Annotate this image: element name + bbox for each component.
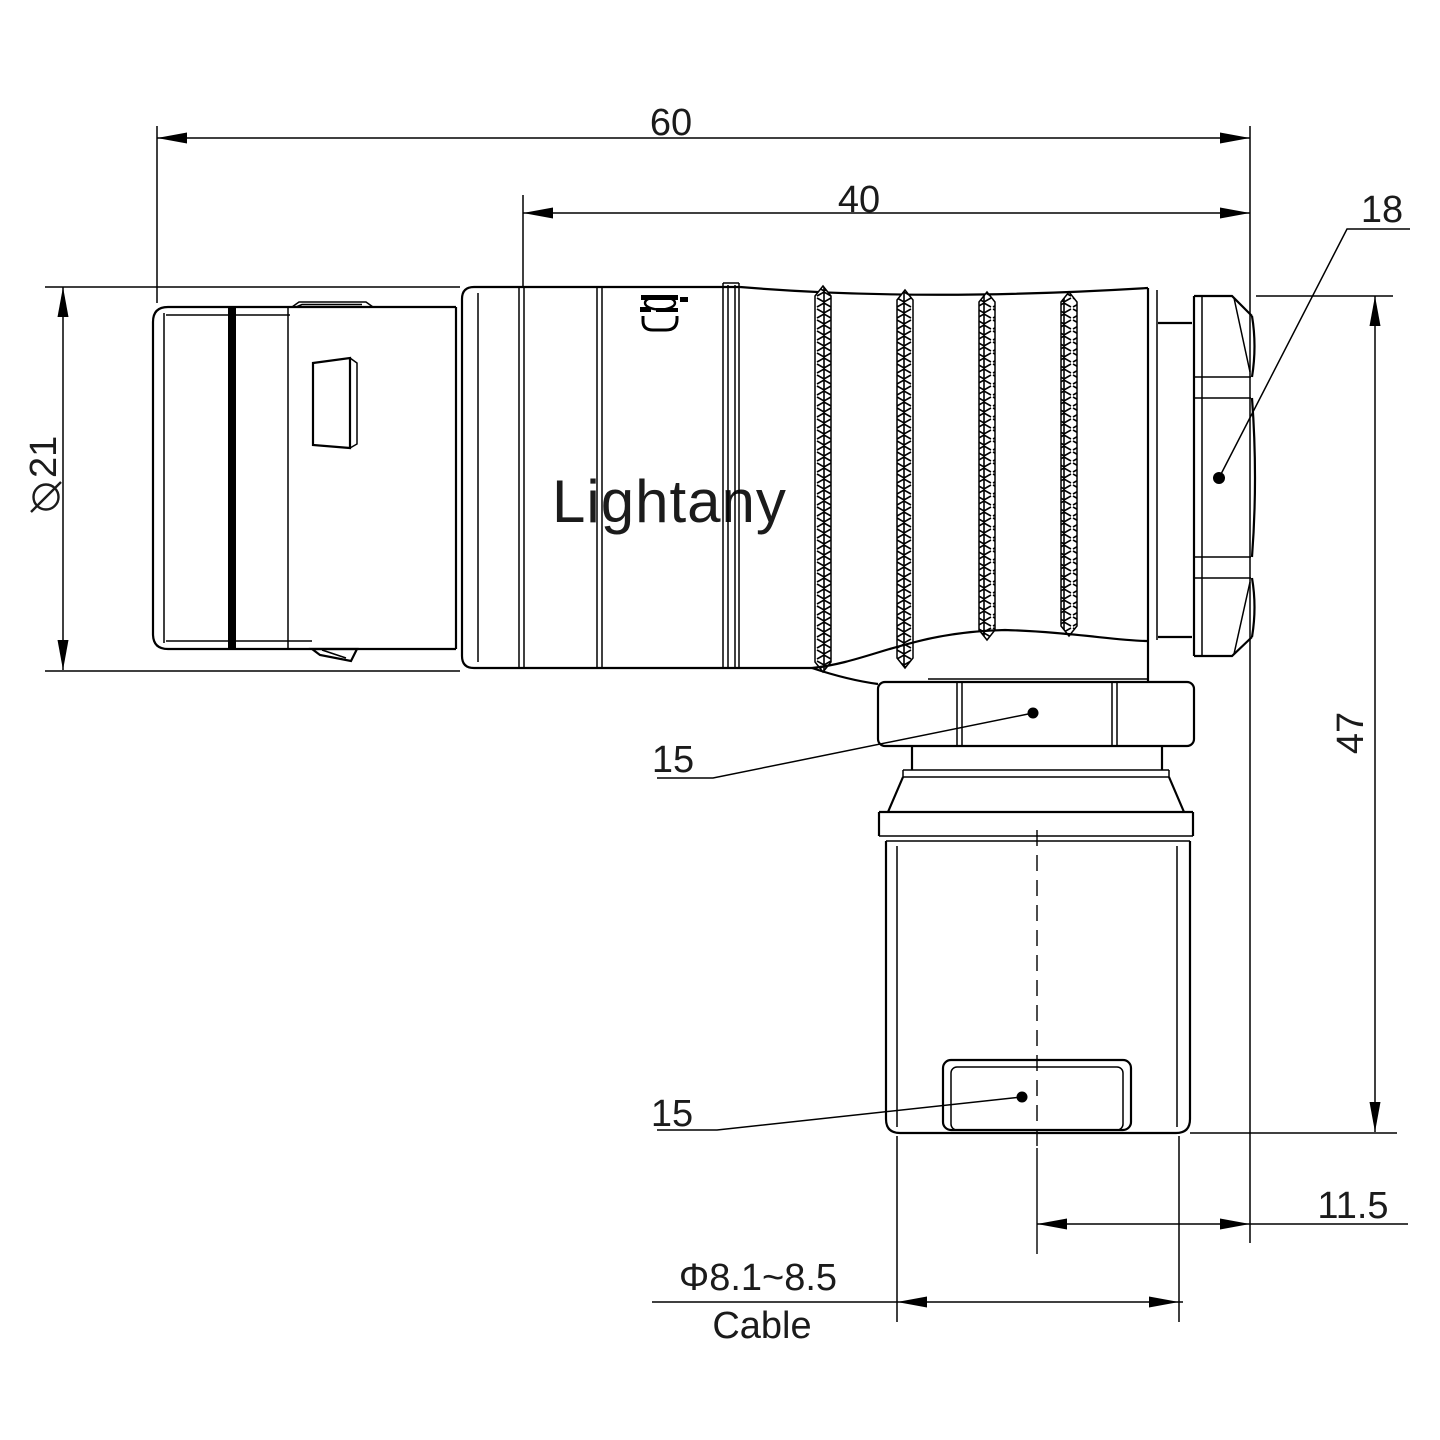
watermark-text: Lightany	[552, 468, 787, 535]
shell-key-stripe	[228, 308, 236, 648]
dim-label-cable: Cable	[712, 1305, 811, 1347]
dim-label-15-upper: 15	[652, 739, 694, 781]
elbow-housing	[812, 630, 1148, 684]
dim-total-length-60: 60	[157, 102, 1250, 1243]
knurl-band	[815, 286, 831, 672]
knurl-band	[979, 292, 995, 640]
dim-body-length-40: 40	[523, 179, 1250, 287]
dim-axis-offset-11-5: 11.5	[1037, 1185, 1408, 1230]
connector-drawing: Lightany	[0, 0, 1440, 1440]
dim-label-11-5: 11.5	[1317, 1185, 1388, 1227]
dim-shell-diameter-21: 21	[23, 287, 460, 671]
leader-cable-clamp-15: 15	[651, 1092, 1028, 1136]
dim-label-21: 21	[23, 436, 65, 478]
rear-neck	[1158, 323, 1192, 637]
brand-logo-mark	[640, 295, 688, 330]
technical-drawing-page: Lightany	[0, 0, 1440, 1440]
dim-label-47: 47	[1330, 712, 1372, 754]
dim-label-18: 18	[1361, 189, 1403, 231]
cable-boot	[886, 841, 1190, 1133]
dim-height-47: 47	[1190, 296, 1397, 1133]
dim-label-60: 60	[650, 102, 692, 144]
bayonet-tab	[312, 649, 357, 661]
bayonet-window	[313, 358, 357, 448]
dim-label-cable-range: Φ8.1~8.5	[679, 1257, 837, 1299]
dim-label-15-lower: 15	[651, 1093, 693, 1135]
dim-cable-range: Φ8.1~8.5 Cable	[652, 1136, 1183, 1347]
knurl-bands	[815, 286, 1077, 672]
knurl-band	[1061, 292, 1077, 636]
dim-label-40: 40	[838, 179, 880, 221]
knurl-band	[897, 290, 913, 668]
diameter-symbol	[31, 482, 61, 512]
cable-gland-stack	[879, 746, 1193, 836]
front-shell	[153, 302, 456, 661]
